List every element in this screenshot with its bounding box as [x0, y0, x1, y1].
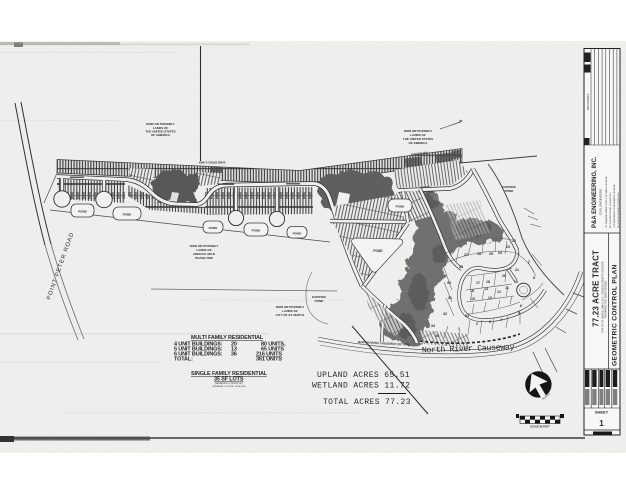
svg-text:11: 11	[505, 286, 509, 290]
svg-text:POND: POND	[315, 299, 325, 303]
svg-text:101 OSBORNE STREET SUITE 2 ST.: 101 OSBORNE STREET SUITE 2 ST. MARYS GEO…	[605, 176, 608, 228]
svg-text:30: 30	[447, 281, 451, 285]
svg-text:REVISIONS: REVISIONS	[586, 94, 590, 110]
svg-text:35: 35	[435, 334, 439, 338]
svg-text:3: 3	[489, 320, 491, 324]
svg-text:20: 20	[502, 274, 506, 278]
svg-text:POND: POND	[209, 226, 219, 230]
svg-text:WETLAND ACRES 11.72: WETLAND ACRES 11.72	[312, 382, 410, 391]
svg-text:17: 17	[476, 281, 480, 285]
svg-text:29: 29	[489, 252, 493, 256]
svg-text:MULTI FAMILY RESIDENTIAL: MULTI FAMILY RESIDENTIAL	[191, 335, 264, 341]
svg-text:POND: POND	[505, 189, 515, 193]
svg-text:PHASE ONE: PHASE ONE	[195, 256, 213, 260]
svg-text:10: 10	[514, 280, 518, 284]
svg-text:1: 1	[458, 327, 460, 331]
svg-text:KING'S CROSS DRIVE: KING'S CROSS DRIVE	[199, 162, 226, 165]
svg-text:39: 39	[459, 265, 463, 269]
svg-text:OF AMERICA: OF AMERICA	[409, 141, 429, 145]
svg-text:POND: POND	[396, 205, 406, 209]
svg-text:36: 36	[231, 352, 237, 358]
svg-text:4: 4	[500, 318, 502, 322]
svg-text:31: 31	[448, 296, 452, 300]
svg-text:PREPARED FOR: MARY STOKES: PREPARED FOR: MARY STOKES	[605, 280, 608, 318]
svg-text:8: 8	[533, 276, 535, 280]
svg-text:34: 34	[431, 324, 435, 328]
svg-text:361 UNITS: 361 UNITS	[256, 357, 282, 363]
svg-text:24: 24	[498, 251, 502, 255]
svg-text:PH (912) 264-0000 FAX (912): PH (912) 264-0000 FAX (912) 264-0001	[617, 192, 620, 228]
svg-text:POND: POND	[373, 249, 383, 253]
svg-text:TOTAL:: TOTAL:	[174, 357, 193, 363]
svg-text:7: 7	[528, 260, 530, 264]
svg-text:18: 18	[486, 280, 490, 284]
svg-text:22: 22	[512, 239, 516, 243]
svg-text:TOTAL ACRES 77.23: TOTAL ACRES 77.23	[323, 398, 411, 407]
svg-text:POND: POND	[293, 232, 303, 236]
svg-text:CIVIL ENGINEERS: CIVIL ENGINEERS	[599, 189, 603, 215]
svg-text:12: 12	[497, 290, 501, 294]
svg-text:PH (912) 882-0000 FAX (912): PH (912) 882-0000 FAX (912) 882-0001	[609, 192, 612, 228]
svg-text:(MINIMUM LOT WIDTH: 80'): (MINIMUM LOT WIDTH: 80')	[215, 383, 243, 385]
svg-text:POND: POND	[78, 210, 88, 214]
svg-text:2: 2	[476, 322, 478, 326]
svg-text:14: 14	[484, 287, 488, 291]
svg-text:1325 NEWCASTLE ST BRUNSWICK GE: 1325 NEWCASTLE ST BRUNSWICK GEORGIA	[613, 184, 616, 228]
svg-text:35 SF LOTS: 35 SF LOTS	[214, 377, 244, 383]
svg-text:15: 15	[471, 297, 475, 301]
svg-text:OF AMERICA: OF AMERICA	[151, 133, 171, 137]
svg-text:27: 27	[464, 253, 468, 257]
svg-text:13: 13	[488, 296, 492, 300]
svg-text:23: 23	[506, 245, 510, 249]
svg-text:6: 6	[520, 304, 522, 308]
svg-text:SCALE IN FEET: SCALE IN FEET	[530, 425, 550, 429]
svg-text:SHEET: SHEET	[595, 410, 609, 415]
svg-text:28: 28	[477, 252, 481, 256]
svg-text:1: 1	[599, 419, 604, 428]
svg-text:5: 5	[518, 311, 520, 315]
svg-text:P&A ENGINEERING, INC.: P&A ENGINEERING, INC.	[592, 156, 598, 228]
svg-text:32: 32	[443, 312, 447, 316]
svg-text:21: 21	[515, 268, 519, 272]
svg-text:GEOMETRIC CONTROL PLAN: GEOMETRIC CONTROL PLAN	[612, 264, 619, 366]
svg-text:(MINIMUM LOT SIZE: 10,500 SF): (MINIMUM LOT SIZE: 10,500 SF)	[213, 386, 246, 388]
svg-text:POND: POND	[252, 229, 262, 233]
svg-text:CITY OF ST. MARYS: CITY OF ST. MARYS	[276, 313, 305, 317]
svg-text:33: 33	[465, 314, 469, 318]
svg-text:POND: POND	[123, 213, 133, 217]
svg-text:UPLAND ACRES 65.51: UPLAND ACRES 65.51	[317, 371, 410, 380]
svg-text:16: 16	[470, 289, 474, 293]
svg-text:77.23 ACRE TRACT: 77.23 ACRE TRACT	[592, 250, 601, 327]
